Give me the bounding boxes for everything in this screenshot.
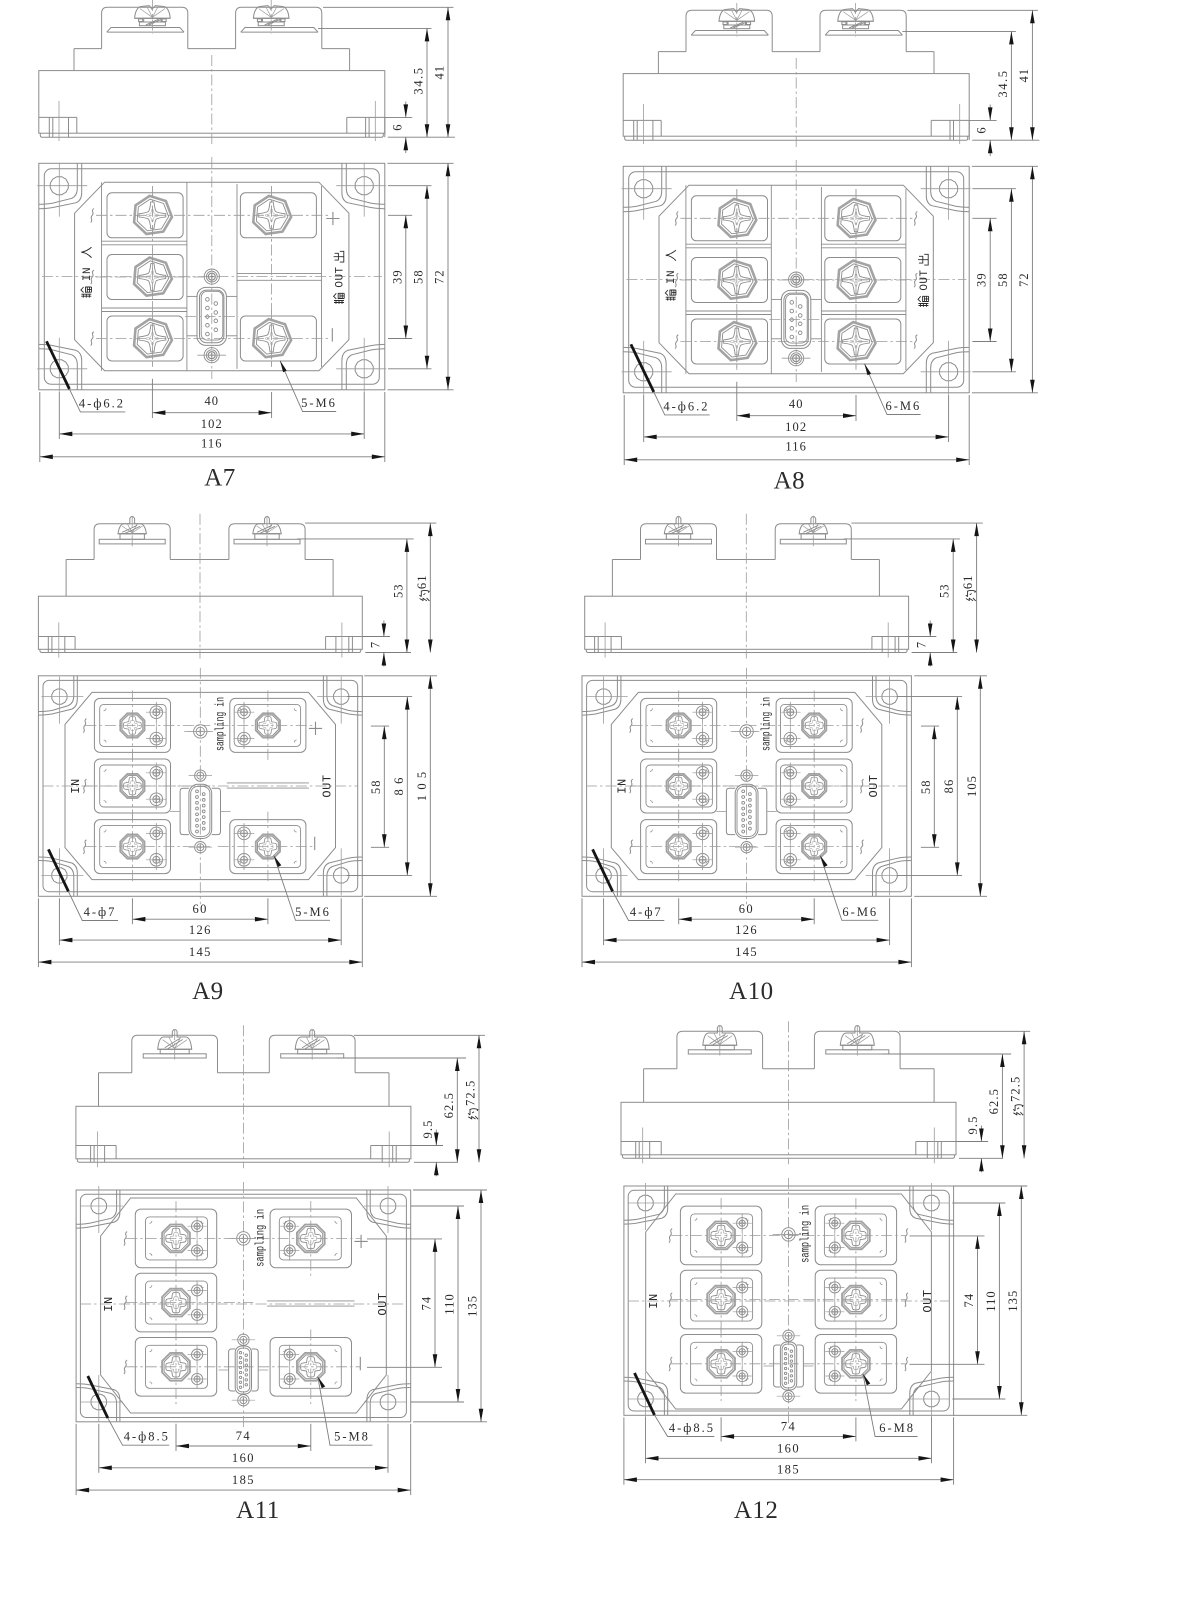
- svg-text:60: 60: [192, 902, 207, 916]
- svg-text:A8: A8: [774, 468, 806, 495]
- svg-text:6-M6: 6-M6: [886, 399, 922, 413]
- svg-text:60: 60: [739, 902, 754, 916]
- svg-text:IN: IN: [647, 1293, 661, 1308]
- svg-text:5-M8: 5-M8: [334, 1430, 370, 1444]
- svg-text:58: 58: [369, 779, 383, 794]
- svg-text:4-ф6.2: 4-ф6.2: [663, 399, 709, 413]
- svg-text:41: 41: [433, 65, 447, 80]
- svg-text:62.5: 62.5: [987, 1088, 1001, 1114]
- svg-text:105: 105: [965, 775, 979, 797]
- svg-text:72: 72: [433, 269, 447, 284]
- svg-text:A11: A11: [236, 1497, 280, 1524]
- svg-text:9.5: 9.5: [966, 1116, 980, 1135]
- svg-text:135: 135: [1006, 1290, 1020, 1312]
- svg-text:4-ф7: 4-ф7: [84, 905, 117, 919]
- svg-text:OUT: OUT: [321, 774, 335, 797]
- svg-text:OUT: OUT: [919, 269, 931, 290]
- svg-text:160: 160: [777, 1441, 800, 1455]
- svg-text:74: 74: [420, 1296, 434, 1311]
- svg-text:145: 145: [189, 945, 212, 959]
- svg-text:72.5: 72.5: [464, 1080, 478, 1106]
- svg-text:sampling in: sampling in: [254, 1209, 267, 1267]
- svg-text:58: 58: [412, 269, 426, 284]
- svg-text:160: 160: [232, 1451, 255, 1465]
- svg-text:116: 116: [201, 436, 223, 450]
- svg-text:IN: IN: [82, 267, 94, 281]
- svg-text:IN: IN: [666, 270, 678, 284]
- svg-text:135: 135: [466, 1295, 480, 1317]
- svg-text:9.5: 9.5: [421, 1120, 435, 1139]
- svg-text:74: 74: [781, 1419, 796, 1433]
- svg-text:sampling in: sampling in: [800, 1205, 813, 1263]
- svg-text:40: 40: [789, 397, 804, 411]
- svg-text:185: 185: [232, 1473, 255, 1487]
- svg-text:sampling in: sampling in: [761, 697, 774, 751]
- svg-text:A10: A10: [729, 978, 774, 1005]
- svg-text:41: 41: [1017, 68, 1031, 83]
- svg-text:110: 110: [984, 1290, 998, 1312]
- svg-text:72.5: 72.5: [1009, 1076, 1023, 1102]
- svg-text:185: 185: [777, 1463, 800, 1477]
- svg-text:39: 39: [390, 269, 404, 284]
- svg-text:74: 74: [236, 1429, 251, 1443]
- svg-text:5-M6: 5-M6: [295, 905, 331, 919]
- svg-text:OUT: OUT: [921, 1289, 935, 1312]
- svg-text:OUT: OUT: [376, 1292, 390, 1315]
- svg-text:74: 74: [962, 1293, 976, 1308]
- svg-text:116: 116: [785, 439, 807, 453]
- svg-text:102: 102: [201, 417, 223, 431]
- svg-text:7: 7: [368, 641, 382, 648]
- svg-text:IN: IN: [615, 778, 629, 793]
- svg-text:58: 58: [919, 779, 933, 794]
- svg-text:4-ф6.2: 4-ф6.2: [79, 396, 125, 410]
- svg-text:IN: IN: [102, 1296, 116, 1311]
- svg-text:39: 39: [975, 272, 989, 287]
- svg-text:40: 40: [204, 394, 219, 408]
- svg-text:61: 61: [415, 574, 429, 589]
- svg-text:6-M8: 6-M8: [879, 1421, 915, 1435]
- svg-text:6-M6: 6-M6: [842, 905, 878, 919]
- svg-text:5-M6: 5-M6: [301, 396, 337, 410]
- svg-text:102: 102: [785, 420, 807, 434]
- svg-text:34.5: 34.5: [996, 69, 1010, 97]
- svg-text:72: 72: [1017, 272, 1031, 287]
- svg-text:4-ф8.5: 4-ф8.5: [124, 1430, 170, 1444]
- svg-text:OUT: OUT: [335, 266, 347, 287]
- svg-text:A9: A9: [192, 978, 224, 1005]
- svg-text:4-ф7: 4-ф7: [630, 905, 663, 919]
- svg-text:126: 126: [189, 923, 212, 937]
- svg-text:IN: IN: [69, 778, 83, 793]
- svg-text:62.5: 62.5: [442, 1092, 456, 1118]
- svg-text:110: 110: [443, 1293, 457, 1315]
- svg-text:8 6: 8 6: [392, 777, 406, 796]
- svg-text:A7: A7: [204, 465, 236, 492]
- svg-text:7: 7: [915, 641, 929, 648]
- svg-text:6: 6: [390, 123, 404, 130]
- svg-text:OUT: OUT: [867, 774, 881, 797]
- svg-text:61: 61: [961, 574, 975, 589]
- svg-text:53: 53: [938, 583, 952, 598]
- svg-text:86: 86: [942, 779, 956, 794]
- svg-text:sampling in: sampling in: [214, 697, 227, 751]
- svg-text:126: 126: [735, 923, 758, 937]
- svg-text:6: 6: [975, 126, 989, 133]
- svg-text:4-ф8.5: 4-ф8.5: [669, 1421, 715, 1435]
- svg-text:58: 58: [996, 272, 1010, 287]
- svg-text:145: 145: [735, 945, 758, 959]
- svg-text:34.5: 34.5: [412, 66, 426, 94]
- svg-text:53: 53: [391, 583, 405, 598]
- svg-text:A12: A12: [734, 1497, 779, 1524]
- svg-text:1 0 5: 1 0 5: [415, 771, 429, 802]
